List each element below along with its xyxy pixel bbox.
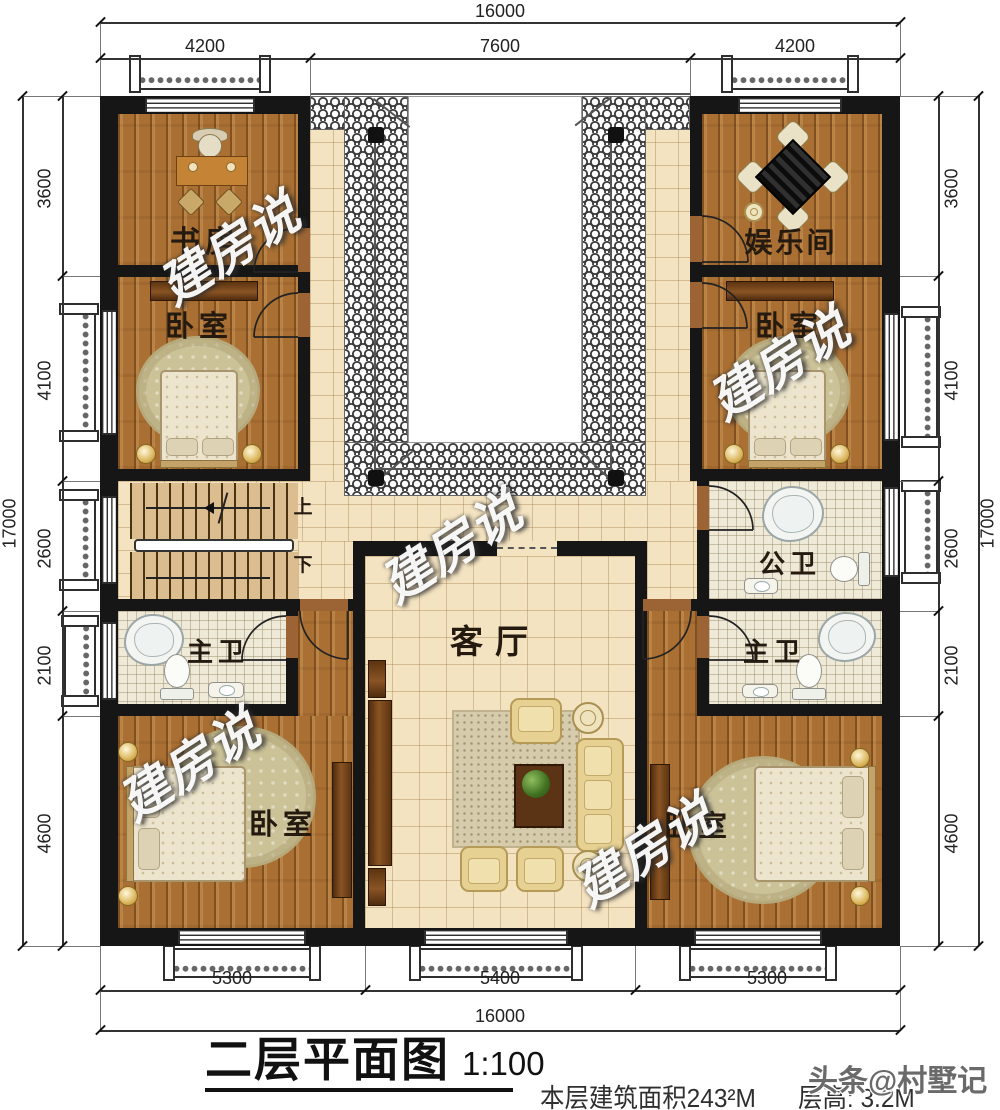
dimension-extension-line	[310, 58, 311, 96]
floor-area-text: 本层建筑面积243²M	[540, 1078, 756, 1110]
room-label-public-bath: 公卫	[750, 550, 830, 579]
master-bath-right-sink	[742, 684, 778, 698]
column-tl	[368, 127, 384, 143]
living-speaker-top	[368, 660, 386, 698]
courtyard-rail-bottom	[374, 468, 612, 470]
drawing-title-text: 二层平面图	[205, 1036, 450, 1083]
dim-bottom-seg-3: 5300	[727, 968, 807, 989]
courtyard-void	[408, 96, 582, 443]
dim-bottom-overall: 16000	[450, 1006, 550, 1027]
dim-right-overall: 17000	[978, 494, 999, 554]
master-bath-left-toilet-tank	[160, 688, 194, 700]
dimension-extension-line	[62, 716, 100, 717]
bedroom-tr-lamp-2	[830, 444, 850, 464]
bedroom-tr-door-gap	[690, 282, 702, 328]
entertainment-window	[738, 98, 842, 112]
wall-bedroom-stairhall	[100, 469, 310, 481]
bedroom-tr-window	[884, 313, 898, 441]
stair-arrow-up-head	[204, 502, 214, 514]
bedroom-tl-lamp-2	[242, 444, 262, 464]
entertainment-stool	[744, 202, 764, 222]
stair-label-down: 下	[290, 556, 316, 577]
drawing-title: 二层平面图 1:100	[205, 1036, 545, 1083]
dim-right-seg-3: 2600	[942, 519, 963, 579]
living-armchair-bottom-1	[460, 846, 508, 892]
balcony-railing-left-2	[62, 496, 96, 584]
living-armchair-top	[510, 698, 562, 744]
balcony-railing-left-1	[62, 310, 96, 435]
public-bath-toilet-bowl	[830, 556, 858, 582]
bedroom-br-passage	[647, 611, 697, 716]
living-plant	[522, 770, 550, 798]
dim-right-seg-4: 2100	[942, 636, 963, 696]
balcony-railing-left-3	[64, 622, 96, 700]
corridor-right-spur	[647, 541, 697, 599]
dim-top-overall: 16000	[450, 1, 550, 22]
living-window	[424, 930, 568, 944]
bedroom-tr-lamp-1	[724, 444, 744, 464]
dimension-extension-line	[900, 481, 938, 482]
bedroom-bl-passage	[298, 611, 353, 716]
dim-top-seg-1: 4200	[165, 36, 245, 57]
dimension-line	[100, 22, 900, 24]
living-armchair-bottom-2	[516, 846, 564, 892]
balcony-railing-top-right	[728, 58, 852, 90]
stair-window	[102, 496, 116, 584]
wall-entertainment-bedroom	[690, 265, 900, 277]
room-label-living: 客厅	[428, 624, 562, 660]
study-window	[145, 98, 255, 112]
living-tv-cabinet	[368, 700, 392, 866]
bedroom-tl-bed	[160, 370, 238, 466]
dim-left-seg-1: 3600	[35, 159, 56, 219]
dimension-extension-line	[900, 611, 938, 612]
column-tr	[608, 127, 624, 143]
dim-top-seg-2: 7600	[460, 36, 540, 57]
entertainment-door-gap	[690, 216, 702, 262]
study-desk-item2	[226, 162, 236, 172]
room-label-bedroom-bl: 卧室	[228, 810, 338, 842]
dim-bottom-seg-2: 5400	[460, 968, 540, 989]
study-desk	[176, 156, 248, 186]
wall-masterbath-right-bedroom	[697, 704, 900, 716]
study-desk-item	[188, 162, 198, 172]
bedroom-bl-door-gap	[300, 599, 348, 611]
courtyard-rail-left	[374, 135, 376, 470]
public-bath-toilet-tank	[858, 552, 870, 586]
study-chair	[198, 134, 222, 158]
dimension-extension-line	[900, 716, 938, 717]
dimension-extension-line	[900, 276, 938, 277]
dimension-extension-line	[635, 946, 636, 990]
dimension-line	[100, 1030, 900, 1032]
roof-band-right	[582, 96, 646, 490]
roof-band-left	[344, 96, 408, 490]
bedroom-br-window	[694, 930, 822, 944]
stair-arrow-down-line	[146, 577, 270, 579]
public-bath-sink	[744, 578, 778, 594]
room-label-master-bath-right: 主卫	[734, 638, 814, 667]
bedroom-br-door-gap	[643, 599, 691, 611]
dim-left-overall: 17000	[0, 494, 21, 554]
balcony-railing-right-1	[904, 313, 938, 441]
stair-flight-upper	[130, 483, 298, 539]
dim-right-seg-1: 3600	[942, 159, 963, 219]
title-underline	[205, 1088, 513, 1092]
room-label-entertainment: 娱乐间	[716, 228, 866, 259]
bedroom-bl-lamp-2	[118, 886, 138, 906]
dimension-extension-line	[62, 611, 100, 612]
courtyard-parapet-line	[310, 93, 690, 95]
dimension-line	[938, 96, 940, 946]
dim-left-seg-3: 2600	[35, 519, 56, 579]
stair-label-up: 上	[290, 498, 316, 519]
author-credit: 头条@村墅记	[808, 1056, 987, 1100]
dim-bottom-seg-1: 5300	[192, 968, 272, 989]
room-label-bedroom-tl: 卧室	[144, 312, 254, 344]
column-bl	[368, 470, 384, 486]
wall-bedroom-publicbath	[690, 469, 900, 481]
room-label-master-bath-left: 主卫	[178, 638, 258, 667]
dim-left-seg-4: 2100	[35, 636, 56, 696]
dim-right-seg-5: 4600	[942, 804, 963, 864]
living-side-table-top	[572, 702, 604, 734]
dimension-extension-line	[62, 276, 100, 277]
balcony-railing-right-2	[904, 487, 938, 577]
master-bath-left-window	[102, 622, 116, 700]
dimension-line	[62, 96, 64, 946]
dim-right-seg-2: 4100	[942, 351, 963, 411]
bedroom-br-lamp-1	[850, 748, 870, 768]
wall-corr-masterbath-right-b	[691, 599, 900, 611]
column-br	[608, 470, 624, 486]
wall-stair-masterbath-a	[100, 599, 300, 611]
living-speaker-bottom	[368, 868, 386, 906]
master-bath-right-toilet-tank	[792, 688, 826, 700]
master-bath-left-door-gap	[286, 616, 298, 658]
bedroom-tl-door-gap	[298, 293, 310, 337]
dimension-extension-line	[365, 946, 366, 990]
courtyard-rail-right	[610, 135, 612, 470]
drawing-scale: 1:100	[462, 1045, 545, 1083]
floor-plan: 书房 娱乐间 卧室 卧室 客厅 公卫 主卫 主卫 卧室 卧室 上 下 16000…	[0, 0, 1000, 1110]
dim-top-seg-3: 4200	[755, 36, 835, 57]
dimension-line	[100, 58, 900, 60]
bedroom-br-bed	[754, 766, 874, 882]
dimension-extension-line	[62, 481, 100, 482]
wall-living-top-right	[557, 541, 647, 556]
public-bath-door-gap	[697, 486, 709, 530]
bedroom-tl-window	[102, 310, 116, 435]
bedroom-bl-window	[178, 930, 306, 944]
dimension-line	[22, 96, 24, 946]
dimension-line	[100, 990, 900, 992]
stair-handrail	[134, 539, 294, 552]
dimension-extension-line	[690, 58, 691, 96]
master-bath-right-door-gap	[697, 616, 709, 658]
wall-living-left	[353, 541, 365, 928]
dim-left-seg-2: 4100	[35, 351, 56, 411]
public-bath-window	[884, 487, 898, 577]
bedroom-tl-lamp-1	[136, 444, 156, 464]
bedroom-br-lamp-2	[850, 886, 870, 906]
balcony-railing-top-left	[136, 58, 264, 90]
dim-left-seg-5: 4600	[35, 804, 56, 864]
